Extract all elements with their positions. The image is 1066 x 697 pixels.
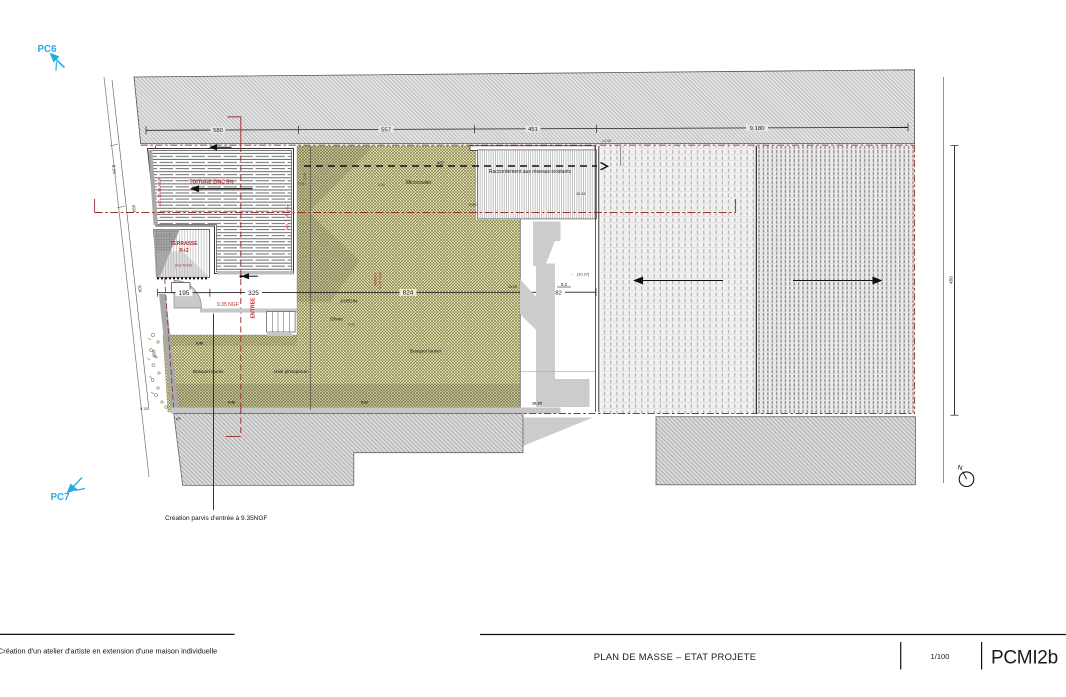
- svg-text:10.35: 10.35: [532, 401, 543, 406]
- svg-text:3.08: 3.08: [303, 173, 307, 180]
- svg-text:10.41: 10.41: [576, 191, 586, 196]
- svg-text:Haie pittosporum: Haie pittosporum: [274, 369, 309, 374]
- svg-text:Acr. 12.46 NGF: Acr. 12.46 NGF: [157, 177, 162, 206]
- svg-text:9.35 NGF: 9.35 NGF: [217, 302, 239, 308]
- svg-text:JARDIN: JARDIN: [340, 299, 358, 305]
- svg-text:9.180: 9.180: [750, 126, 765, 132]
- svg-text:.: .: [571, 271, 572, 277]
- svg-text:Raccordement aux réseaux exist: Raccordement aux réseaux existants: [489, 169, 572, 175]
- svg-text:9.33: 9.33: [140, 406, 149, 411]
- svg-text:14.08: 14.08: [602, 139, 611, 143]
- svg-text:467: 467: [437, 161, 445, 166]
- svg-text:Création parvis d'entrée à 9.3: Création parvis d'entrée à 9.35NGF: [165, 515, 267, 522]
- svg-text:ENTREE: ENTREE: [251, 297, 257, 319]
- svg-text:8.10: 8.10: [111, 165, 117, 175]
- svg-text:PCMI2b: PCMI2b: [991, 648, 1058, 669]
- svg-text:PLAN DE MASSE – ETAT PROJETE: PLAN DE MASSE – ETAT PROJETE: [594, 651, 757, 662]
- svg-text:Bosquet laurier: Bosquet laurier: [193, 369, 224, 374]
- svg-text:Acr. 7.46 NGF: Acr. 7.46 NGF: [285, 203, 290, 230]
- svg-text:PC7: PC7: [51, 492, 71, 503]
- svg-text:9.06: 9.06: [348, 323, 355, 327]
- svg-text:557: 557: [381, 127, 391, 133]
- svg-text:N: N: [957, 464, 963, 472]
- svg-text:PC6: PC6: [38, 44, 58, 55]
- svg-text:Création d'un atelier d'artist: Création d'un atelier d'artiste en exten…: [0, 647, 217, 656]
- svg-text:450: 450: [949, 276, 954, 284]
- svg-text:6.98: 6.98: [196, 342, 203, 346]
- svg-text:580: 580: [213, 128, 224, 134]
- svg-text:325: 325: [248, 290, 259, 297]
- svg-text:R+2: R+2: [179, 248, 189, 254]
- svg-text:9.08: 9.08: [298, 182, 305, 186]
- svg-text:1/100: 1/100: [930, 652, 949, 661]
- svg-text:(10.27): (10.27): [577, 272, 590, 277]
- svg-text:9.2: 9.2: [561, 282, 568, 287]
- svg-text:TOITURE ZINC 5%: TOITURE ZINC 5%: [189, 180, 234, 186]
- svg-text:9.02: 9.02: [361, 401, 368, 405]
- svg-text:(4.8 NGF): (4.8 NGF): [175, 263, 193, 268]
- svg-text:824: 824: [403, 290, 414, 297]
- svg-text:9.06: 9.06: [378, 183, 385, 187]
- svg-text:Micocoulier: Micocoulier: [406, 180, 432, 186]
- svg-text:195: 195: [179, 290, 190, 297]
- svg-text:Olivier: Olivier: [330, 317, 343, 322]
- svg-text:TERRASSE: TERRASSE: [170, 241, 198, 247]
- svg-text:Bouquet laurier: Bouquet laurier: [410, 349, 442, 354]
- svg-text:451: 451: [528, 127, 538, 133]
- svg-text:9.00: 9.00: [469, 202, 477, 207]
- svg-text:6.48: 6.48: [228, 401, 235, 405]
- svg-text:594: 594: [131, 205, 137, 214]
- svg-text:10.05: 10.05: [508, 285, 517, 289]
- svg-text:9.26 NGF: 9.26 NGF: [378, 271, 383, 289]
- svg-text:104: 104: [137, 285, 143, 294]
